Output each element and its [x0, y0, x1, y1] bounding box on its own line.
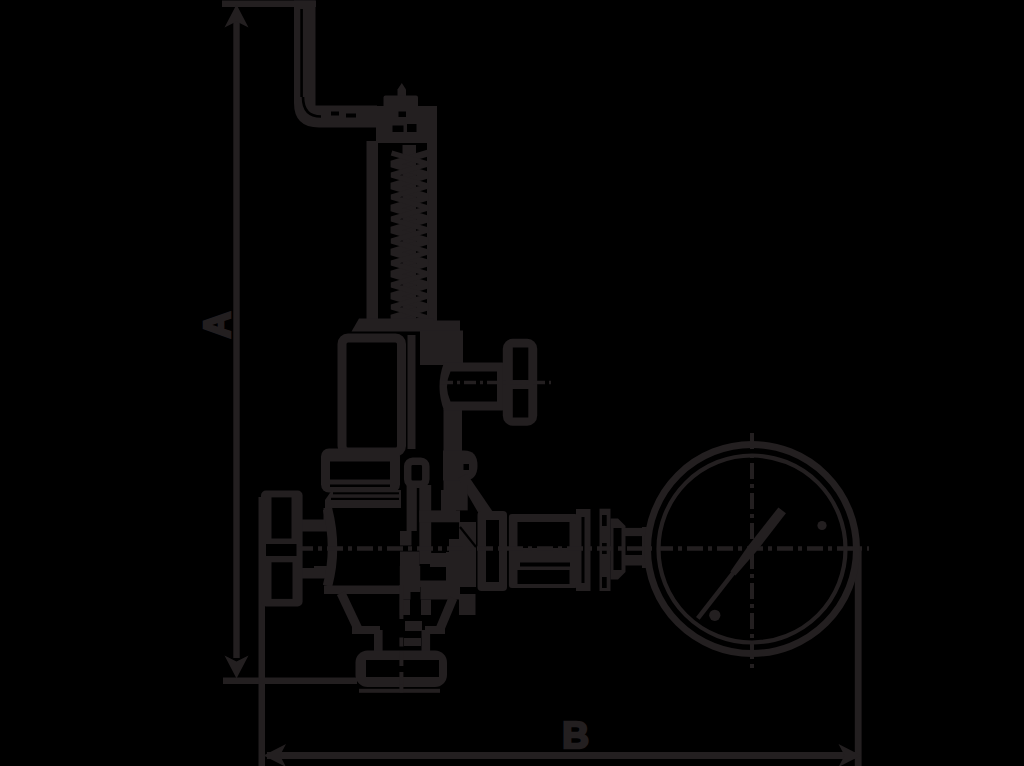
svg-text:B: B	[562, 715, 589, 756]
svg-text:A: A	[197, 312, 238, 339]
